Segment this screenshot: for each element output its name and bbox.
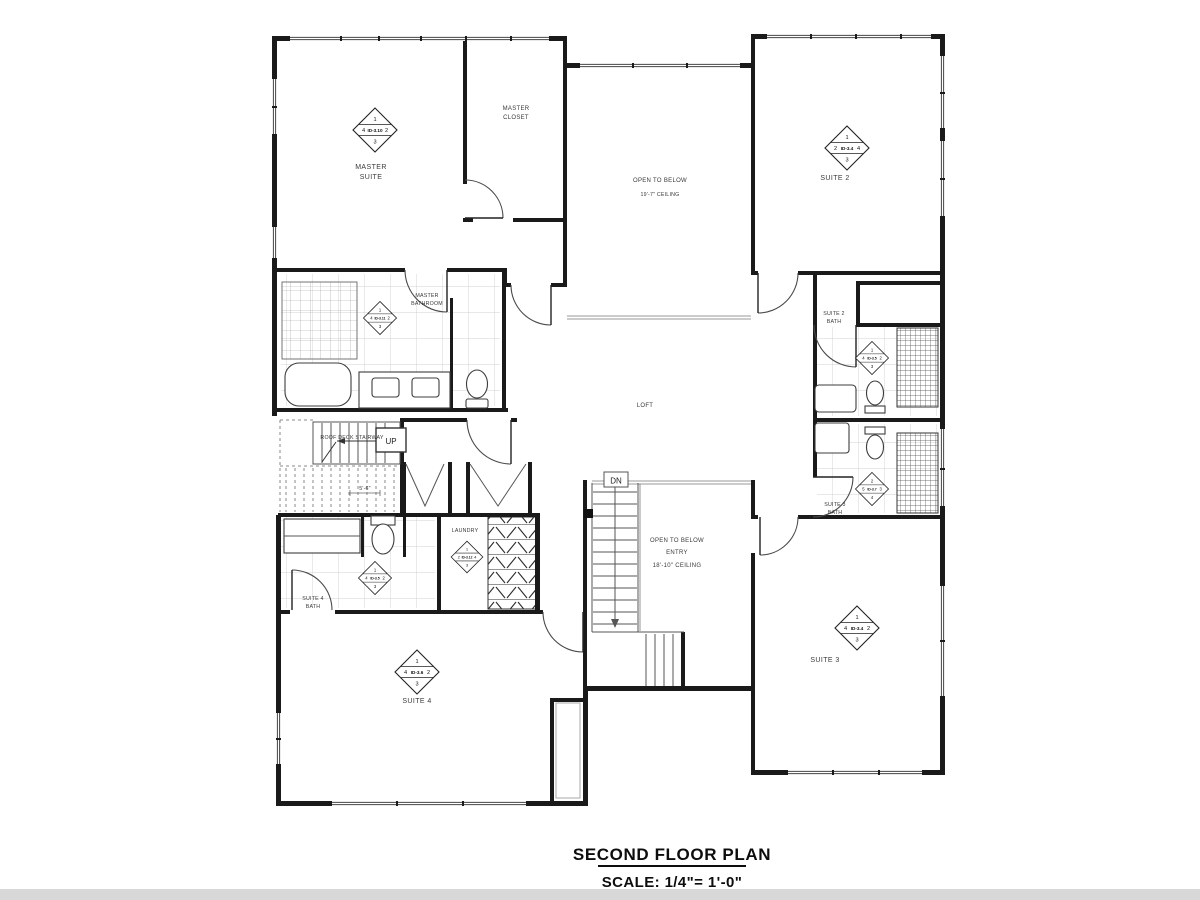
svg-text:2: 2 <box>867 626 870 632</box>
svg-text:3: 3 <box>373 140 376 146</box>
drawing-title: SECOND FLOOR PLAN <box>573 845 771 864</box>
bathtub <box>285 363 351 406</box>
suite3-bath-label: SUITE 3 <box>824 502 845 508</box>
closet-double-door <box>470 464 526 506</box>
svg-text:ID-3.4: ID-3.4 <box>841 146 854 151</box>
roof-deck-stairs: UP 5'-6" <box>280 420 406 512</box>
suite4-label: SUITE 4 <box>402 698 431 705</box>
open-to-below-label: OPEN TO BELOW <box>633 178 687 184</box>
up-label: UP <box>385 437 396 446</box>
keynote-tag-laundry: ID-3.12 1 3 2 4 <box>451 541 483 573</box>
sink <box>372 378 399 397</box>
svg-text:2: 2 <box>385 128 388 134</box>
svg-text:BATH: BATH <box>828 510 843 516</box>
floor-plan-drawing: DN UP 5'-6" ID-3.10 1 3 4 2 <box>0 0 1200 900</box>
entry-stairs: DN <box>584 472 684 686</box>
toilet-bowl <box>867 381 884 405</box>
suite2-bath-fixtures <box>815 381 885 413</box>
chase-liner <box>556 703 580 798</box>
master-closet-label: MASTER <box>503 106 530 112</box>
svg-text:1: 1 <box>845 135 848 141</box>
sink <box>412 378 439 397</box>
svg-text:ID-3.6: ID-3.6 <box>411 670 424 675</box>
svg-text:BATH: BATH <box>306 604 321 610</box>
svg-text:3: 3 <box>415 682 418 688</box>
suite3-label: SUITE 3 <box>810 657 839 664</box>
footer-strip <box>0 889 1200 900</box>
svg-text:4: 4 <box>844 626 847 632</box>
suite4-bath-label: SUITE 4 <box>302 596 323 602</box>
svg-text:4: 4 <box>362 128 365 134</box>
svg-text:3: 3 <box>845 158 848 164</box>
svg-text:1: 1 <box>855 615 858 621</box>
svg-text:ENTRY: ENTRY <box>666 550 688 556</box>
toilet-tank <box>865 406 885 413</box>
svg-text:ID-3.12: ID-3.12 <box>462 555 473 559</box>
suite3-shower-tile <box>897 433 938 513</box>
svg-text:SUITE: SUITE <box>360 174 383 181</box>
svg-text:ID-3.7: ID-3.7 <box>867 487 876 491</box>
laundry-label: LAUNDRY <box>452 528 479 534</box>
stair-dimension: 5'-6" <box>359 486 371 492</box>
vanity-counter <box>815 385 856 412</box>
entry-label: OPEN TO BELOW <box>650 538 704 544</box>
vanity-counter <box>815 423 849 453</box>
master-suite-label: MASTER <box>355 164 387 171</box>
svg-text:2: 2 <box>427 670 430 676</box>
svg-text:ID-3.5: ID-3.5 <box>370 576 379 580</box>
toilet-bowl <box>372 524 394 554</box>
drawing-scale: SCALE: 1/4"= 1'-0" <box>602 874 742 891</box>
svg-text:4: 4 <box>404 670 407 676</box>
keynote-tag-suite3: ID-3.4 1 3 4 2 <box>835 606 879 650</box>
svg-text:1: 1 <box>373 117 376 123</box>
roof-deck-stairway-label: ROOF DECK STAIRWAY <box>320 435 383 441</box>
svg-text:CLOSET: CLOSET <box>503 115 529 121</box>
svg-text:19'-7" CEILING: 19'-7" CEILING <box>641 192 680 198</box>
svg-text:ID-3.4: ID-3.4 <box>851 626 864 631</box>
suite2-label: SUITE 2 <box>820 175 849 182</box>
svg-text:BATHROOM: BATHROOM <box>411 301 443 307</box>
floor-plan-page: DN UP 5'-6" ID-3.10 1 3 4 2 <box>0 0 1200 900</box>
suite2-shower-tile <box>897 328 938 407</box>
dn-label: DN <box>610 477 622 486</box>
svg-text:BATH: BATH <box>827 319 842 325</box>
svg-text:2: 2 <box>834 146 837 152</box>
title-block: SECOND FLOOR PLAN SCALE: 1/4"= 1'-0" <box>573 845 771 891</box>
suite4-bath-fixtures <box>284 516 395 554</box>
loft-label: LOFT <box>637 403 654 409</box>
svg-text:ID-3.11: ID-3.11 <box>374 316 385 320</box>
svg-text:3: 3 <box>855 638 858 644</box>
newel-post <box>584 509 593 518</box>
svg-text:ID-3.5: ID-3.5 <box>867 356 876 360</box>
toilet-bowl <box>467 370 488 398</box>
master-shower-tile <box>282 282 357 359</box>
laundry-herringbone-tile <box>488 517 536 609</box>
toilet-tank <box>466 399 488 408</box>
keynote-tag-suite4: ID-3.6 1 3 4 2 <box>395 650 439 694</box>
svg-text:1: 1 <box>415 659 418 665</box>
toilet-bowl <box>867 435 884 459</box>
svg-text:18'-10" CEILING: 18'-10" CEILING <box>653 563 702 569</box>
suite2-bath-label: SUITE 2 <box>823 311 844 317</box>
keynote-tag-master-suite: ID-3.10 1 3 4 2 <box>353 108 397 152</box>
svg-text:ID-3.10: ID-3.10 <box>367 128 383 133</box>
toilet-tank <box>865 427 885 434</box>
master-bathroom-label: MASTER <box>415 293 438 299</box>
closet-double-door <box>406 464 444 506</box>
svg-text:4: 4 <box>857 146 860 152</box>
keynote-tag-suite2: ID-3.4 1 3 2 4 <box>825 126 869 170</box>
